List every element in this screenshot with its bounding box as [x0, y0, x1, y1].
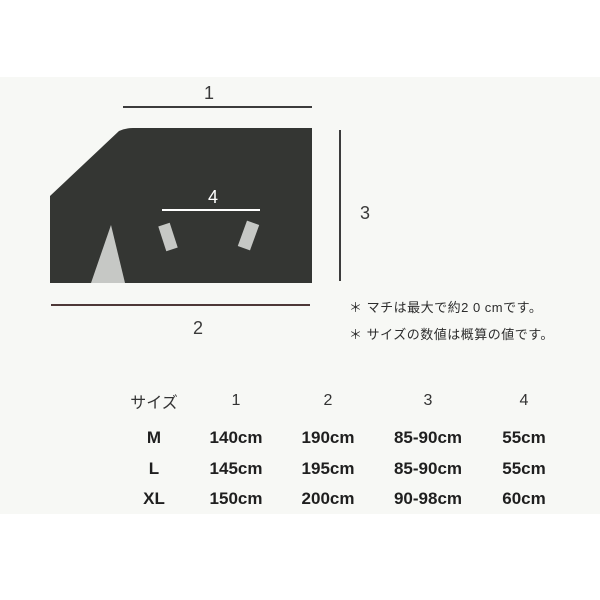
size-table-header-row: サイズ 1 2 3 4: [114, 389, 570, 413]
table-cell: 200cm: [278, 489, 378, 509]
table-cell: 60cm: [478, 489, 570, 509]
measure-label-4: 4: [208, 188, 218, 206]
table-cell: 140cm: [194, 428, 278, 448]
table-cell: 85-90cm: [378, 459, 478, 479]
measure-label-3: 3: [360, 204, 370, 222]
table-row-xl: XL 150cm 200cm 90-98cm 60cm: [114, 489, 570, 509]
table-cell: 145cm: [194, 459, 278, 479]
measure-label-1: 1: [204, 84, 214, 102]
table-row-m: M 140cm 190cm 85-90cm 55cm: [114, 428, 570, 448]
size-chart-image: 1 4 3 2 ＊ マチは最大で約2 0 cmです。 ＊ サイズの数値は概算の値…: [0, 0, 600, 600]
table-cell: 195cm: [278, 459, 378, 479]
note-gusset: ＊ マチは最大で約2 0 cmです。: [349, 300, 542, 315]
table-header-2: 2: [278, 392, 378, 410]
table-header-4: 4: [478, 392, 570, 410]
table-header-3: 3: [378, 392, 478, 410]
size-label: M: [114, 428, 194, 448]
table-header-1: 1: [194, 392, 278, 410]
table-cell: 55cm: [478, 428, 570, 448]
table-cell: 85-90cm: [378, 428, 478, 448]
measure-label-2: 2: [193, 319, 203, 337]
table-header-size: サイズ: [114, 389, 194, 413]
table-cell: 90-98cm: [378, 489, 478, 509]
garment-shape: [50, 128, 312, 283]
table-cell: 190cm: [278, 428, 378, 448]
note-approximate: ＊ サイズの数値は概算の値です。: [349, 327, 554, 342]
table-row-l: L 145cm 195cm 85-90cm 55cm: [114, 459, 570, 479]
table-cell: 55cm: [478, 459, 570, 479]
table-cell: 150cm: [194, 489, 278, 509]
size-label: XL: [114, 489, 194, 509]
size-label: L: [114, 459, 194, 479]
